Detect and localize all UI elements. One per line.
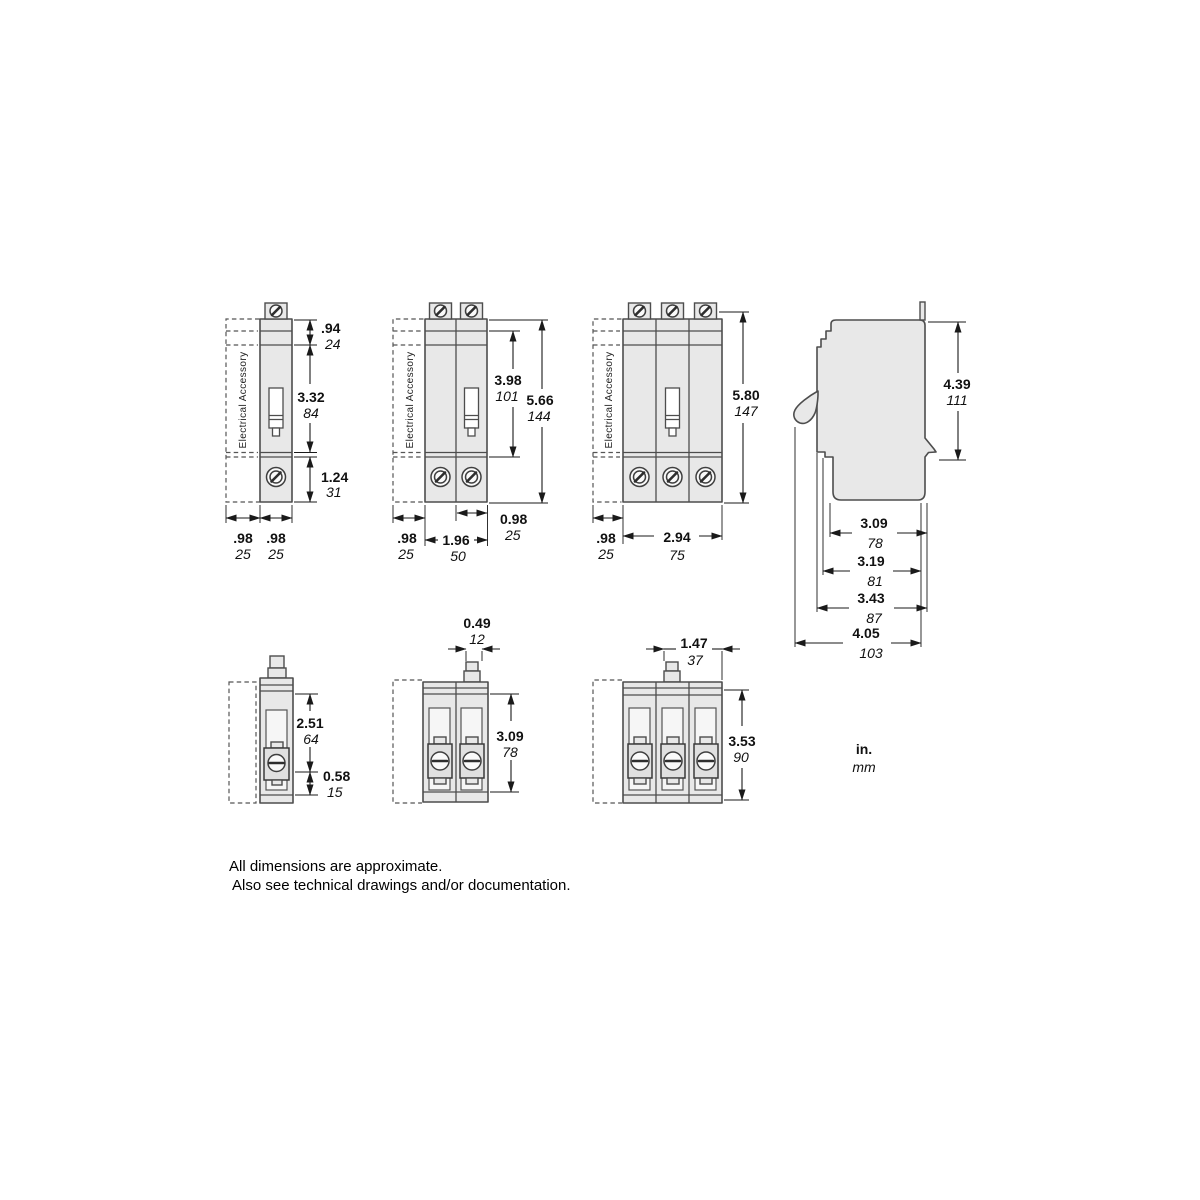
- dim-depth-body: 3.09 78: [830, 515, 927, 551]
- accessory-dashed-box: [229, 682, 256, 803]
- dim-label-mm: 25: [397, 546, 414, 562]
- dim-label-mm: 50: [450, 548, 466, 564]
- dim-label-mm: 84: [303, 405, 319, 421]
- dim-accessory-width: .98 25: [593, 505, 623, 562]
- dim-bottom-section: 1.24 31: [294, 457, 348, 502]
- dim-label-mm: 25: [234, 546, 251, 562]
- dim-body-depth: 3.53 90: [724, 690, 756, 800]
- dim-label-in: 3.43: [857, 590, 884, 606]
- dim-label-mm: 12: [469, 631, 485, 647]
- dim-label-in: 2.51: [296, 715, 323, 731]
- dim-accessory-width: .98 25: [393, 505, 425, 562]
- accessory-dashed-box: [393, 680, 422, 803]
- dim-total-height: 5.80 147: [719, 312, 760, 503]
- dimension-drawing: Electrical Accessory .94 24 3.32 84 1.24: [0, 0, 1200, 1200]
- dim-label-in: 3.19: [857, 553, 884, 569]
- dim-label-mm: 147: [734, 403, 759, 419]
- dim-height: 4.39 111: [928, 322, 971, 460]
- clamp-tab: [434, 737, 446, 744]
- handle-stub-top: [466, 662, 478, 671]
- operating-handle: [794, 391, 818, 423]
- units-legend: in. mm: [852, 741, 876, 775]
- dim-label-mm: 15: [327, 784, 343, 800]
- dim-label-mm: 78: [502, 744, 518, 760]
- dim-label-mm: 75: [669, 547, 685, 563]
- accessory-dashed-box: [593, 680, 622, 803]
- handle-stub-top: [666, 662, 678, 671]
- units-mm-label: mm: [852, 759, 876, 775]
- dim-label-mm: 81: [867, 573, 883, 589]
- handle-stub-base: [268, 668, 286, 678]
- dim-label-in: .98: [397, 530, 417, 546]
- dim-label-mm: 101: [495, 388, 518, 404]
- dim-label-mm: 64: [303, 731, 319, 747]
- dimension-drawing-page: Electrical Accessory .94 24 3.32 84 1.24: [0, 0, 1200, 1200]
- dim-label-mm: 24: [324, 336, 341, 352]
- dim-depth-overall: 4.05 103: [795, 625, 921, 661]
- accessory-label: Electrical Accessory: [405, 352, 416, 449]
- dim-label-in: 3.09: [496, 728, 523, 744]
- clamp-tab: [667, 778, 679, 784]
- dim-label-mm: 25: [504, 527, 521, 543]
- clamp-tab: [466, 778, 478, 784]
- dim-total-width: 1.96 50: [425, 532, 488, 564]
- dim-label-mm: 103: [859, 645, 883, 661]
- dim-label-in: .98: [266, 530, 286, 546]
- dim-handle-width: 0.49 12: [448, 615, 500, 661]
- dim-inner-height: 3.98 101: [489, 331, 522, 457]
- dim-label-mm: 25: [267, 546, 284, 562]
- dim-top-section: .94 24: [294, 320, 341, 352]
- toggle-nub: [468, 428, 475, 436]
- dim-label-in: .98: [233, 530, 253, 546]
- clamp-tab: [272, 780, 282, 785]
- dim-label-mm: 78: [867, 535, 883, 551]
- dim-total-height: 5.66 144: [489, 320, 554, 503]
- dim-label-in: 3.98: [494, 372, 521, 388]
- footnote-line1: All dimensions are approximate.: [229, 858, 442, 875]
- bottom-view-1pole: 2.51 64 0.58 15: [229, 656, 350, 803]
- handle-stub-base: [464, 671, 480, 682]
- dim-total-width: 2.94 75: [623, 505, 722, 563]
- toggle-handle: [666, 388, 680, 428]
- clamp-tab: [700, 778, 712, 784]
- dim-label-in: 4.05: [852, 625, 879, 641]
- dim-label-in: 5.80: [732, 387, 759, 403]
- clamp-tab: [667, 737, 679, 744]
- dim-label-mm: 111: [946, 392, 967, 408]
- dim-body-depth: 2.51 64: [295, 694, 324, 795]
- toggle-handle: [465, 388, 479, 428]
- rear-pin: [920, 302, 925, 320]
- handle-stub-base: [664, 671, 680, 682]
- dim-label-in: 3.32: [297, 389, 324, 405]
- toggle-handle: [269, 388, 283, 428]
- clamp-tab: [434, 778, 446, 784]
- front-view-1pole: Electrical Accessory .94 24 3.32 84 1.24: [226, 303, 348, 562]
- toggle-nub: [669, 428, 676, 436]
- units-inches-label: in.: [856, 741, 872, 757]
- clamp-tab: [271, 742, 283, 748]
- accessory-label: Electrical Accessory: [238, 352, 249, 449]
- dim-widths: .98 25 .98 25: [226, 505, 292, 562]
- dim-label-in: 1.24: [321, 469, 348, 485]
- side-view: 4.39 111 3.09 78 3.19 81 3.43 87 4.05 10…: [794, 302, 971, 661]
- dim-label-in: 0.58: [323, 768, 350, 784]
- bottom-view-2pole: 0.49 12 3.09 78: [393, 615, 524, 803]
- toggle-nub: [273, 428, 280, 436]
- dim-label-in: 1.47: [680, 635, 707, 651]
- footnote-line2: Also see technical drawings and/or docum…: [232, 877, 571, 894]
- clamp-tab: [466, 737, 478, 744]
- clamp-tab: [634, 778, 646, 784]
- clamp-tab: [634, 737, 646, 744]
- dim-label-in: 1.96: [442, 532, 469, 548]
- front-view-3pole: Electrical Accessory 5.80 147: [593, 303, 760, 563]
- breaker-body: [817, 320, 936, 500]
- dim-label-in: .94: [321, 320, 341, 336]
- clamp-tab: [700, 737, 712, 744]
- dim-depth-flange: 3.43 87: [817, 590, 927, 626]
- dim-label-in: 3.53: [728, 733, 755, 749]
- front-view-2pole: Electrical Accessory 3.98 101 5.66: [393, 303, 554, 564]
- dim-body-depth: 3.09 78: [490, 694, 524, 792]
- dim-label-mm: 37: [687, 652, 704, 668]
- dim-label-in: 4.39: [943, 376, 970, 392]
- dim-label-mm: 31: [326, 484, 342, 500]
- dim-label-mm: 87: [866, 610, 883, 626]
- dim-label-in: 2.94: [663, 529, 690, 545]
- dim-middle-section: 3.32 84: [294, 345, 325, 453]
- footnotes: All dimensions are approximate. Also see…: [229, 858, 571, 894]
- handle-stub-top: [270, 656, 284, 668]
- dim-label-mm: 90: [733, 749, 749, 765]
- dim-label-in: 3.09: [860, 515, 887, 531]
- dim-depth-step: 3.19 81: [823, 553, 921, 589]
- dim-label-mm: 144: [527, 408, 551, 424]
- dim-label-mm: 25: [597, 546, 614, 562]
- accessory-label: Electrical Accessory: [604, 352, 615, 449]
- dim-label-in: 5.66: [526, 392, 553, 408]
- dim-label-in: .98: [596, 530, 616, 546]
- dim-label-in: 0.49: [463, 615, 490, 631]
- bottom-view-3pole: 1.47 37 3.53 90: [593, 635, 756, 803]
- dim-handle-offset: 1.47 37: [646, 635, 740, 680]
- dim-label-in: 0.98: [500, 511, 527, 527]
